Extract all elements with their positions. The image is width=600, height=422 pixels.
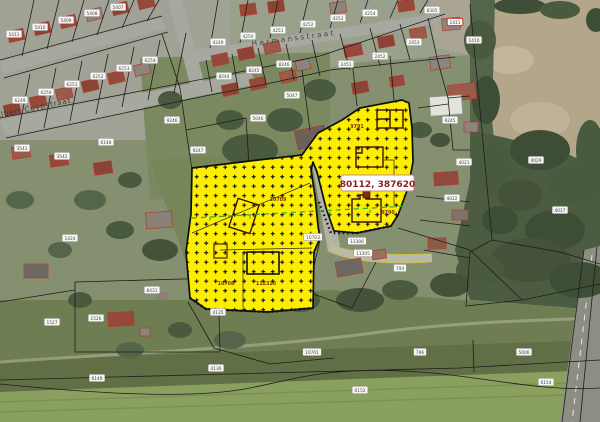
- svg-text:5046: 5046: [253, 116, 264, 122]
- svg-text:9246: 9246: [167, 118, 178, 124]
- parcel-number-label: 4021: [456, 158, 472, 165]
- parcel-number-label: 4254: [362, 9, 378, 16]
- parcel-number-label: 6250: [38, 88, 54, 95]
- parcel-number-label: 9247: [190, 146, 206, 153]
- parcel-number-label: 5006: [516, 348, 532, 355]
- parcel-number-label: 5407: [110, 3, 126, 10]
- svg-text:5411: 5411: [9, 32, 20, 38]
- parcel-number-label: 796: [414, 348, 427, 355]
- svg-text:2451: 2451: [341, 62, 352, 68]
- parcel-number-label: 1411: [447, 18, 463, 25]
- svg-text:1411: 1411: [450, 20, 461, 26]
- svg-text:4253: 4253: [333, 16, 344, 22]
- parcel-number-label: 4250: [240, 32, 256, 39]
- map-canvas[interactable]: 107091070811232097919790 Albert Cuypstra…: [0, 0, 600, 422]
- map-viewport[interactable]: 107091070811232097919790 Albert Cuypstra…: [0, 0, 600, 422]
- parcel-number-label: 8245: [246, 66, 262, 73]
- svg-text:10703: 10703: [306, 235, 320, 241]
- parcel-number-label: 4136: [208, 364, 224, 371]
- svg-text:6149: 6149: [92, 376, 103, 382]
- svg-text:9247: 9247: [193, 148, 204, 154]
- parcel-number-label: 1526: [88, 314, 104, 321]
- selected-parcel-number: 112320: [256, 281, 277, 287]
- parcel-number-label: 6254: [142, 56, 158, 63]
- svg-text:6249: 6249: [15, 98, 26, 104]
- parcel-number-label: 4249: [210, 38, 226, 45]
- svg-text:5047: 5047: [287, 93, 298, 99]
- svg-text:8246: 8246: [279, 62, 290, 68]
- parcel-number-label: 8305: [424, 6, 440, 13]
- parcel-number-label: 6253: [116, 64, 132, 71]
- coordinate-callout: 80112, 387620: [340, 175, 415, 191]
- svg-text:2453: 2453: [409, 40, 420, 46]
- parcel-number-label: 9246: [164, 116, 180, 123]
- parcel-number-label: 9245: [442, 116, 458, 123]
- svg-text:8431: 8431: [147, 288, 158, 294]
- svg-text:11305: 11305: [356, 251, 370, 257]
- parcel-number-label: 4022: [444, 194, 460, 201]
- svg-text:6154: 6154: [541, 380, 552, 386]
- parcel-number-label: 11306: [348, 237, 367, 244]
- svg-text:5407: 5407: [113, 5, 124, 11]
- svg-text:4252: 4252: [303, 22, 314, 28]
- svg-text:794: 794: [396, 266, 404, 272]
- parcel-number-label: 4135: [210, 308, 226, 315]
- svg-text:2452: 2452: [375, 54, 386, 60]
- parcel-number-label: 8244: [216, 72, 232, 79]
- svg-text:5006: 5006: [519, 350, 530, 356]
- svg-text:796: 796: [416, 350, 424, 356]
- svg-text:6148: 6148: [101, 140, 112, 146]
- svg-text:1424: 1424: [65, 236, 76, 242]
- svg-text:10701: 10701: [305, 350, 319, 356]
- parcel-number-label: 6152: [352, 386, 368, 393]
- svg-text:4017: 4017: [555, 208, 566, 214]
- parcel-number-label: 2453: [406, 38, 422, 45]
- svg-text:8244: 8244: [219, 74, 230, 80]
- selected-parcel-number: 10708: [218, 281, 235, 287]
- parcel-number-label: 4253: [330, 14, 346, 21]
- parcel-number-label: 5410: [32, 23, 48, 30]
- parcel-number-label: 4029: [528, 156, 544, 163]
- parcel-number-label: 8246: [276, 60, 292, 67]
- parcel-number-label: 5411: [6, 30, 22, 37]
- parcel-number-label: 6249: [12, 96, 28, 103]
- parcel-number-label: 8431: [144, 286, 160, 293]
- parcel-number-label: 1410: [466, 36, 482, 43]
- parcel-number-label: 10703: [304, 233, 323, 240]
- svg-text:1527: 1527: [47, 320, 58, 326]
- callout-text: 80112, 387620: [340, 180, 415, 190]
- parcel-number-label: 3541: [14, 144, 30, 151]
- parcel-number-label: 4017: [552, 206, 568, 213]
- svg-text:5409: 5409: [61, 18, 72, 24]
- svg-text:5410: 5410: [35, 25, 46, 31]
- parcel-number-label: 6154: [538, 378, 554, 385]
- parcel-number-label: 10701: [303, 348, 322, 355]
- svg-text:1526: 1526: [91, 316, 102, 322]
- svg-text:4249: 4249: [213, 40, 224, 46]
- parcel-number-label: 6148: [98, 138, 114, 145]
- parcel-number-label: 4251: [270, 26, 286, 33]
- parcel-number-label: 2452: [372, 52, 388, 59]
- svg-text:4136: 4136: [211, 366, 222, 372]
- parcel-number-label: 3542: [54, 152, 70, 159]
- svg-text:11306: 11306: [350, 239, 364, 245]
- parcel-number-label: 5409: [58, 16, 74, 23]
- svg-text:4250: 4250: [243, 34, 254, 40]
- svg-text:4135: 4135: [213, 310, 224, 316]
- svg-text:8305: 8305: [427, 8, 438, 14]
- svg-text:4021: 4021: [459, 160, 470, 166]
- svg-text:6252: 6252: [93, 74, 104, 80]
- svg-text:4029: 4029: [531, 158, 542, 164]
- parcel-number-label: 11305: [354, 249, 373, 256]
- svg-text:6254: 6254: [145, 58, 156, 64]
- parcel-number-label: 5408: [84, 9, 100, 16]
- svg-text:4254: 4254: [365, 11, 376, 17]
- parcel-number-label: 5046: [250, 114, 266, 121]
- parcel-number-label: 4252: [300, 20, 316, 27]
- selected-parcel-number: 9790: [381, 210, 395, 216]
- parcel-number-label: 1424: [62, 234, 78, 241]
- svg-text:1410: 1410: [469, 38, 480, 44]
- parcel-number-label: 2451: [338, 60, 354, 67]
- svg-text:6253: 6253: [119, 66, 130, 72]
- svg-text:3541: 3541: [17, 146, 28, 152]
- svg-text:4022: 4022: [447, 196, 458, 202]
- svg-text:3542: 3542: [57, 154, 68, 160]
- parcel-number-label: 6252: [90, 72, 106, 79]
- selected-parcel-number: 10709: [270, 197, 287, 203]
- parcel-number-label: 6149: [89, 374, 105, 381]
- parcel-number-label: 6251: [64, 80, 80, 87]
- svg-text:6251: 6251: [67, 82, 78, 88]
- svg-text:9245: 9245: [445, 118, 456, 124]
- svg-text:5408: 5408: [87, 11, 98, 17]
- parcel-number-label: 794: [394, 264, 407, 271]
- svg-text:6250: 6250: [41, 90, 52, 96]
- parcel-number-label: 1527: [44, 318, 60, 325]
- svg-text:8245: 8245: [249, 68, 260, 74]
- parcel-number-label: 5047: [284, 91, 300, 98]
- svg-text:6152: 6152: [355, 388, 366, 394]
- svg-text:4251: 4251: [273, 28, 284, 34]
- selected-parcel-number: 9791: [350, 124, 363, 130]
